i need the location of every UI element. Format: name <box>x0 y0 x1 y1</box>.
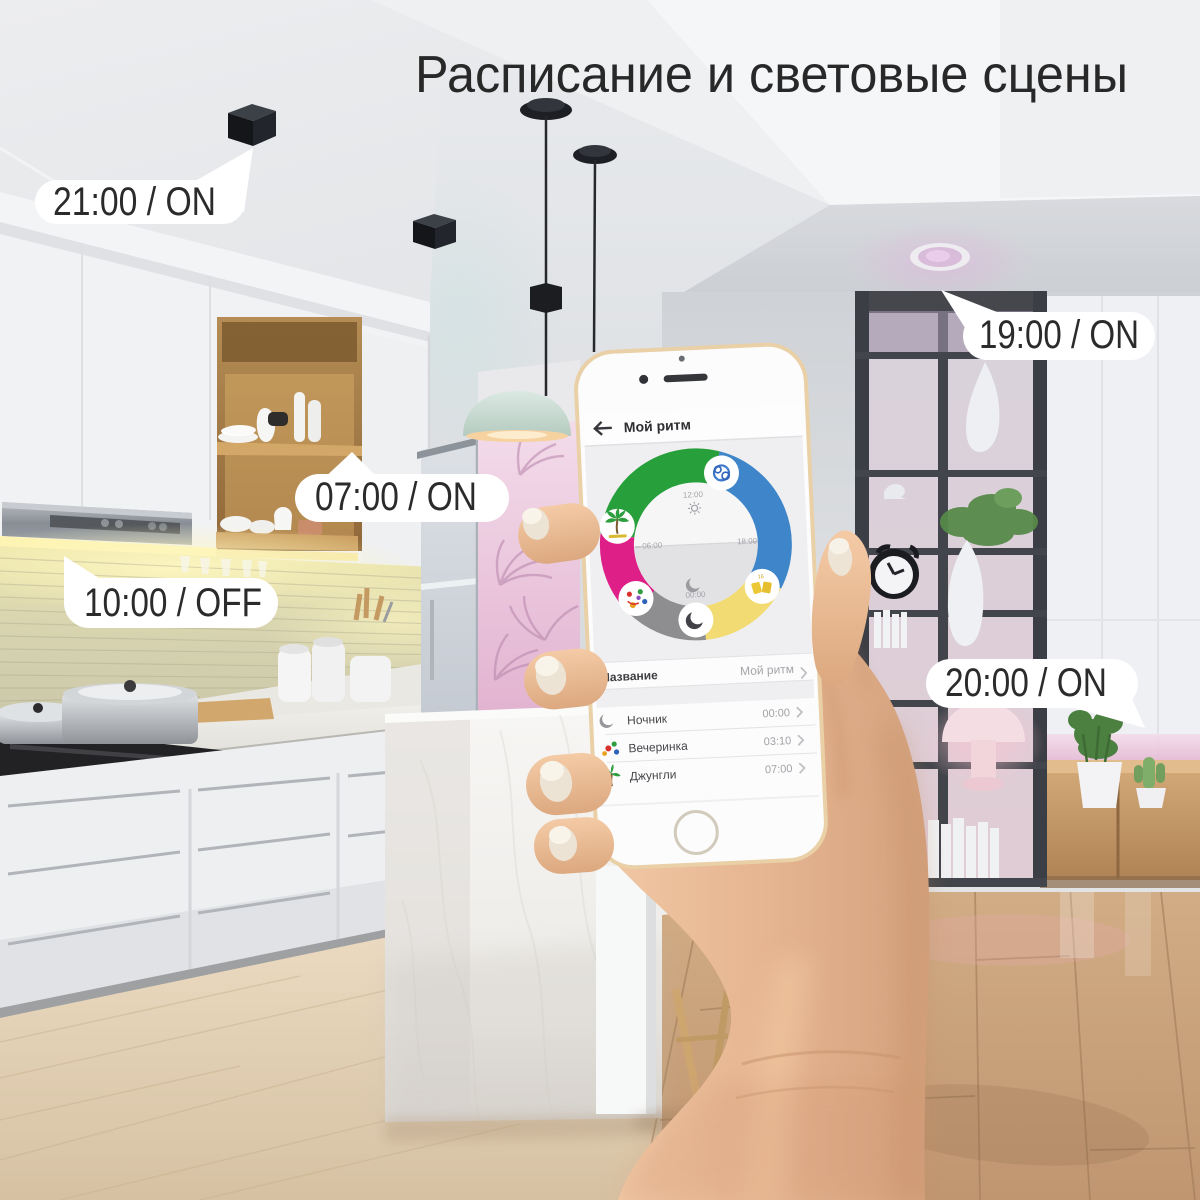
svg-text:Ночник: Ночник <box>627 712 668 728</box>
svg-text:21:00 / ON: 21:00 / ON <box>53 180 216 224</box>
svg-text:10:00 / OFF: 10:00 / OFF <box>84 581 262 625</box>
svg-text:Джунгли: Джунгли <box>629 767 676 783</box>
svg-text:Название: Название <box>601 668 659 685</box>
svg-text:00:00: 00:00 <box>762 707 790 720</box>
svg-text:20:00 / ON: 20:00 / ON <box>945 661 1107 705</box>
svg-text:Мой ритм: Мой ритм <box>740 662 795 678</box>
svg-text:06:00: 06:00 <box>642 541 663 551</box>
svg-text:16: 16 <box>758 574 764 580</box>
svg-text:Вечеринка: Вечеринка <box>628 739 688 756</box>
svg-text:00:00: 00:00 <box>685 590 706 600</box>
svg-text:19:00 / ON: 19:00 / ON <box>979 313 1139 357</box>
svg-text:07:00: 07:00 <box>765 763 793 776</box>
svg-text:07:00 / ON: 07:00 / ON <box>315 475 477 519</box>
svg-text:12:00: 12:00 <box>683 490 704 500</box>
svg-text:03:10: 03:10 <box>763 735 791 748</box>
svg-text:Мой ритм: Мой ритм <box>623 416 691 435</box>
svg-text:Расписание и световые сцены: Расписание и световые сцены <box>415 46 1128 104</box>
